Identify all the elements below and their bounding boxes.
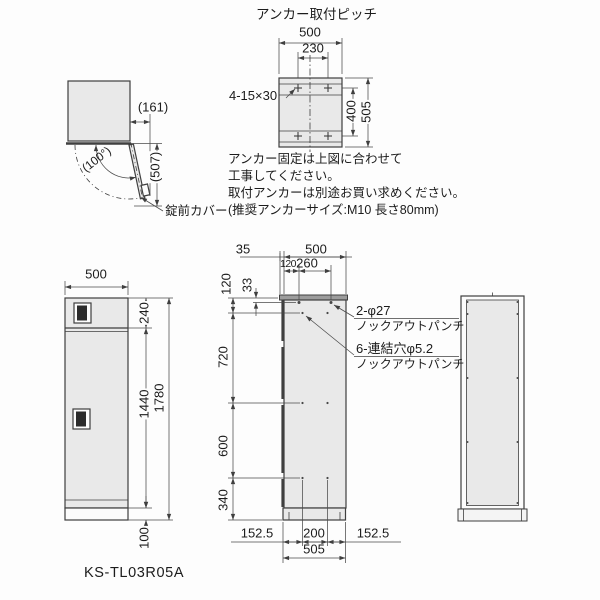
dim-base-depth: 505 [303,543,325,558]
anchor-view-title: アンカー取付ピッチ [256,7,377,23]
anchor-slot-label: 4-15×30 [229,89,277,104]
dim-anchor-pitch-y: 400 [345,99,360,123]
note-line-3: 取付アンカーは別途お買い求めください。 [228,186,465,200]
anchor-pitch-view [279,38,373,152]
dim-door-protrusion: (161) [138,101,168,116]
dim-side-gap3: 340 [217,489,232,511]
dim-anchor-depth: 505 [360,100,375,124]
dim-door-swing: (507) [149,151,164,183]
drawing-linework [0,0,600,600]
knockout-label-2: 6-連結穴φ5.2 [356,342,433,357]
lock-cover-label: 錠前カバー [165,204,228,218]
lock-front-cover [141,184,150,196]
knockout-label-1-sub: ノックアウトパンチ [356,320,464,334]
dim-anchor-pitch-x: 230 [302,42,324,57]
dim-base-front: 152.5 [241,527,274,542]
model-number: KS-TL03R05A [84,565,184,582]
knockout-label-2-sub: ノックアウトパンチ [356,358,464,372]
dim-side-row1: 120 [220,273,235,295]
dim-anchor-width: 500 [299,26,321,41]
door-handle-top [74,303,91,323]
dim-base-pitch: 200 [303,527,325,542]
rear-base [458,509,527,521]
door-handle-main [73,409,90,429]
note-line-4: (推奨アンカーサイズ:M10 長さ80mm) [228,203,439,217]
dim-base-height: 100 [138,526,153,550]
side-base [283,508,346,520]
front-base [65,508,128,520]
knockout-label-1: 2-φ27 [356,304,390,319]
dim-side-top-edge: 33 [241,278,256,292]
dim-side-gap2: 600 [217,435,232,457]
dim-side-gap1: 720 [217,346,232,368]
dim-front-width: 500 [85,268,107,283]
rear-view [458,293,527,522]
note-line-1: アンカー固定は上図に合わせて [228,152,403,166]
dim-total-height: 1780 [153,384,168,413]
side-view [228,251,459,563]
dim-knockout-offset2: 260 [296,257,318,272]
dim-base-rear: 152.5 [357,527,390,542]
dim-top-section: 240 [138,301,153,325]
note-line-2: 工事してください。 [228,169,340,183]
front-view [65,281,173,547]
dim-door-height: 1440 [138,389,153,420]
dim-side-front: 35 [236,243,250,258]
technical-drawing-page: アンカー取付ピッチ 500 230 400 505 4-15×30 (161) … [0,0,600,600]
dim-knockout-offset1: 120 [280,258,296,270]
